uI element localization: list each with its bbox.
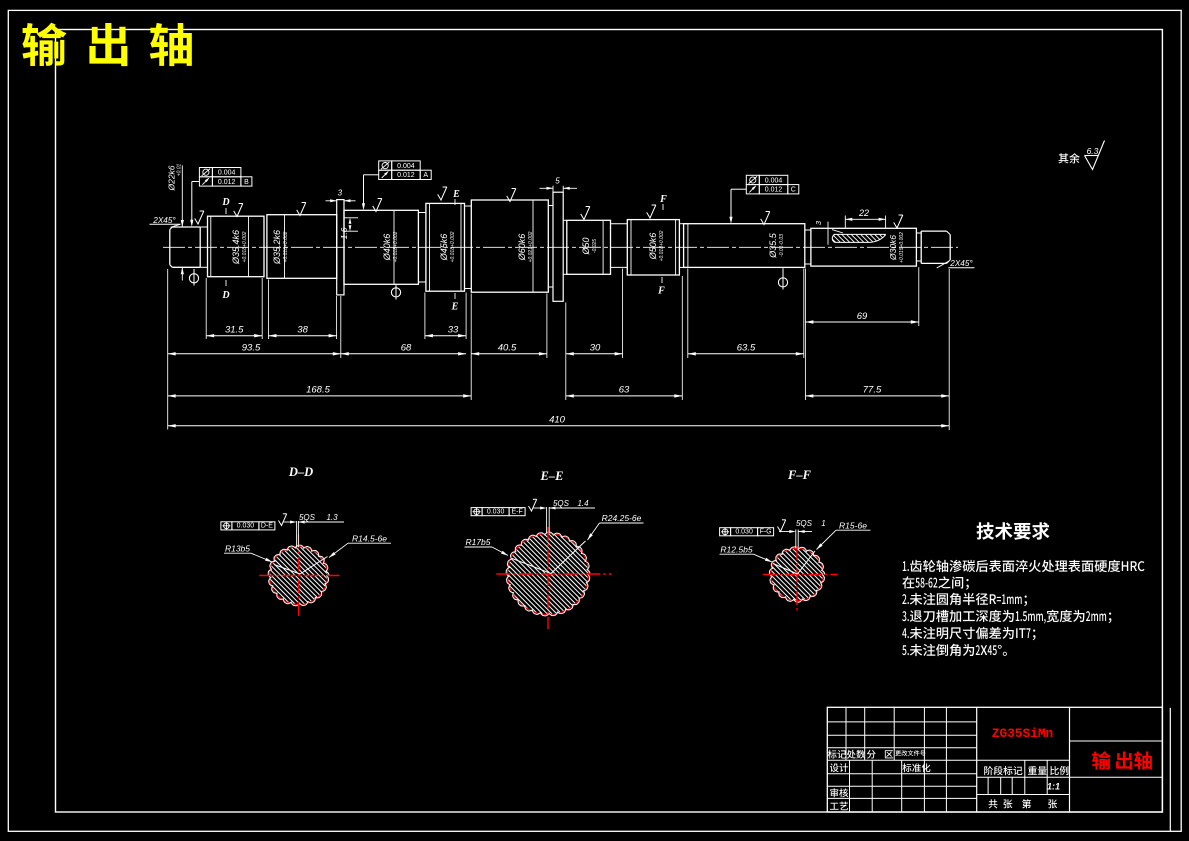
svg-text:5: 5 — [555, 177, 560, 186]
svg-text:6.3: 6.3 — [1087, 146, 1099, 156]
svg-text:0.030: 0.030 — [237, 523, 255, 530]
svg-text:R24.25-6e: R24.25-6e — [602, 513, 642, 523]
svg-text:+0.021+0.002: +0.021+0.002 — [528, 231, 534, 262]
svg-text:R12.5b5: R12.5b5 — [720, 545, 752, 555]
svg-text:1:1: 1:1 — [1047, 782, 1060, 792]
svg-text:Ø50: Ø50 — [581, 237, 591, 255]
svg-text:F: F — [659, 194, 667, 205]
svg-text:B: B — [244, 179, 249, 186]
svg-text:0.012: 0.012 — [218, 179, 236, 186]
svg-text:1: 1 — [821, 519, 825, 528]
svg-text:5QS: 5QS — [796, 519, 813, 528]
svg-text:+0.018+0.002: +0.018+0.002 — [450, 231, 456, 262]
svg-text:E–E: E–E — [540, 469, 564, 483]
svg-text:63: 63 — [619, 385, 630, 396]
svg-text:2X45°: 2X45° — [152, 216, 176, 225]
svg-text:1.6: 1.6 — [339, 227, 349, 239]
svg-text:D-E: D-E — [261, 523, 273, 530]
svg-text:93.5: 93.5 — [242, 343, 261, 354]
svg-text:E: E — [451, 302, 459, 313]
svg-text:38: 38 — [297, 325, 308, 336]
svg-text:Ø45k6: Ø45k6 — [439, 234, 449, 262]
svg-text:Ø60k6: Ø60k6 — [517, 234, 527, 262]
svg-text:1.4: 1.4 — [577, 499, 589, 508]
svg-text:F–F: F–F — [787, 468, 812, 482]
svg-text:168.5: 168.5 — [306, 385, 330, 396]
svg-text:77.5: 77.5 — [863, 385, 882, 396]
svg-text:+0.018+0.002: +0.018+0.002 — [242, 231, 248, 262]
svg-text:+0.018+0.002: +0.018+0.002 — [659, 230, 665, 261]
svg-text:A: A — [423, 172, 428, 179]
svg-text:ZG35SiMn: ZG35SiMn — [992, 726, 1053, 741]
svg-text:Ø35.2k6: Ø35.2k6 — [272, 230, 282, 265]
svg-text:Ø22k6: Ø22k6 — [167, 165, 177, 191]
svg-text:+0.015+0.002: +0.015+0.002 — [899, 232, 905, 263]
svg-text:0.030: 0.030 — [487, 508, 505, 515]
svg-text:E-F: E-F — [511, 508, 522, 515]
svg-text:F-G: F-G — [760, 529, 772, 536]
svg-text:0.004: 0.004 — [765, 177, 783, 184]
svg-text:R13b5: R13b5 — [225, 544, 250, 554]
svg-text:0.012: 0.012 — [397, 172, 415, 179]
svg-text:1.3: 1.3 — [326, 513, 338, 522]
svg-text:5QS: 5QS — [553, 499, 570, 508]
svg-text:69: 69 — [857, 311, 868, 322]
svg-text:-0.01-0.03: -0.01-0.03 — [779, 234, 785, 257]
svg-text:R15-6e: R15-6e — [839, 520, 867, 530]
svg-text:Ø35.4k6: Ø35.4k6 — [231, 230, 241, 265]
svg-text:40.5: 40.5 — [498, 343, 517, 354]
svg-text:D: D — [221, 290, 229, 301]
svg-text:Ø50k6: Ø50k6 — [648, 233, 658, 261]
svg-text:F: F — [657, 286, 665, 297]
svg-text:+0.01: +0.01 — [177, 163, 183, 176]
svg-text:0.004: 0.004 — [397, 163, 415, 170]
svg-text:68: 68 — [401, 343, 412, 354]
svg-text:C: C — [791, 187, 796, 194]
svg-text:R17b5: R17b5 — [465, 537, 490, 547]
svg-text:0.012: 0.012 — [765, 187, 783, 194]
svg-text:410: 410 — [549, 415, 566, 426]
svg-text:31.5: 31.5 — [225, 325, 244, 336]
svg-text:Ø40k6: Ø40k6 — [382, 234, 392, 262]
svg-text:D–D: D–D — [288, 465, 313, 479]
svg-text:3: 3 — [338, 189, 343, 198]
svg-text:+0.018+0.002: +0.018+0.002 — [393, 231, 399, 262]
svg-text:33: 33 — [448, 325, 459, 336]
svg-text:Ø30k6: Ø30k6 — [888, 235, 898, 261]
svg-text:63.5: 63.5 — [737, 343, 756, 354]
svg-text:R14.5-6e: R14.5-6e — [352, 534, 387, 544]
svg-text:+0.018+0.002: +0.018+0.002 — [283, 231, 289, 262]
svg-text:2X45°: 2X45° — [949, 259, 973, 268]
svg-text:-0.025: -0.025 — [592, 239, 598, 253]
svg-text:5QS: 5QS — [299, 513, 316, 522]
svg-text:D: D — [221, 197, 229, 208]
svg-text:Ø35.5: Ø35.5 — [768, 232, 778, 259]
svg-text:30: 30 — [590, 343, 601, 354]
svg-text:E: E — [452, 189, 460, 200]
svg-text:0.030: 0.030 — [735, 529, 753, 536]
svg-text:22: 22 — [858, 208, 869, 218]
svg-text:0.004: 0.004 — [218, 170, 236, 177]
